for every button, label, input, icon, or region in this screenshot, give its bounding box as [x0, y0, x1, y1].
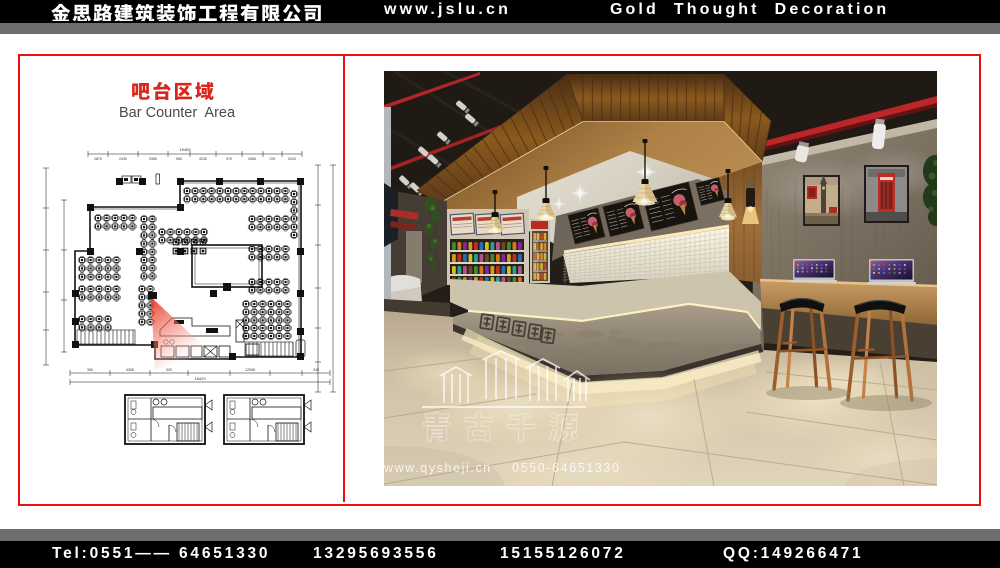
svg-text:3065: 3065	[248, 157, 256, 161]
svg-text:4230: 4230	[199, 157, 207, 161]
svg-text:2430: 2430	[119, 157, 127, 161]
svg-text:725: 725	[269, 157, 275, 161]
svg-text:2980: 2980	[149, 157, 157, 161]
svg-text:345: 345	[313, 368, 319, 372]
svg-text:960: 960	[176, 157, 182, 161]
svg-text:320: 320	[166, 368, 172, 372]
svg-text:www.qysheji.cn 0550-6465133: www.qysheji.cn 0550-64651330	[384, 461, 621, 475]
svg-text:18429: 18429	[194, 376, 206, 381]
svg-text:970: 970	[226, 157, 232, 161]
svg-text:350: 350	[87, 368, 93, 372]
svg-text:4306: 4306	[126, 368, 134, 372]
svg-text:12598: 12598	[245, 368, 255, 372]
svg-text:2410: 2410	[288, 157, 296, 161]
svg-text:1870: 1870	[94, 157, 102, 161]
svg-text:19465: 19465	[179, 147, 191, 152]
